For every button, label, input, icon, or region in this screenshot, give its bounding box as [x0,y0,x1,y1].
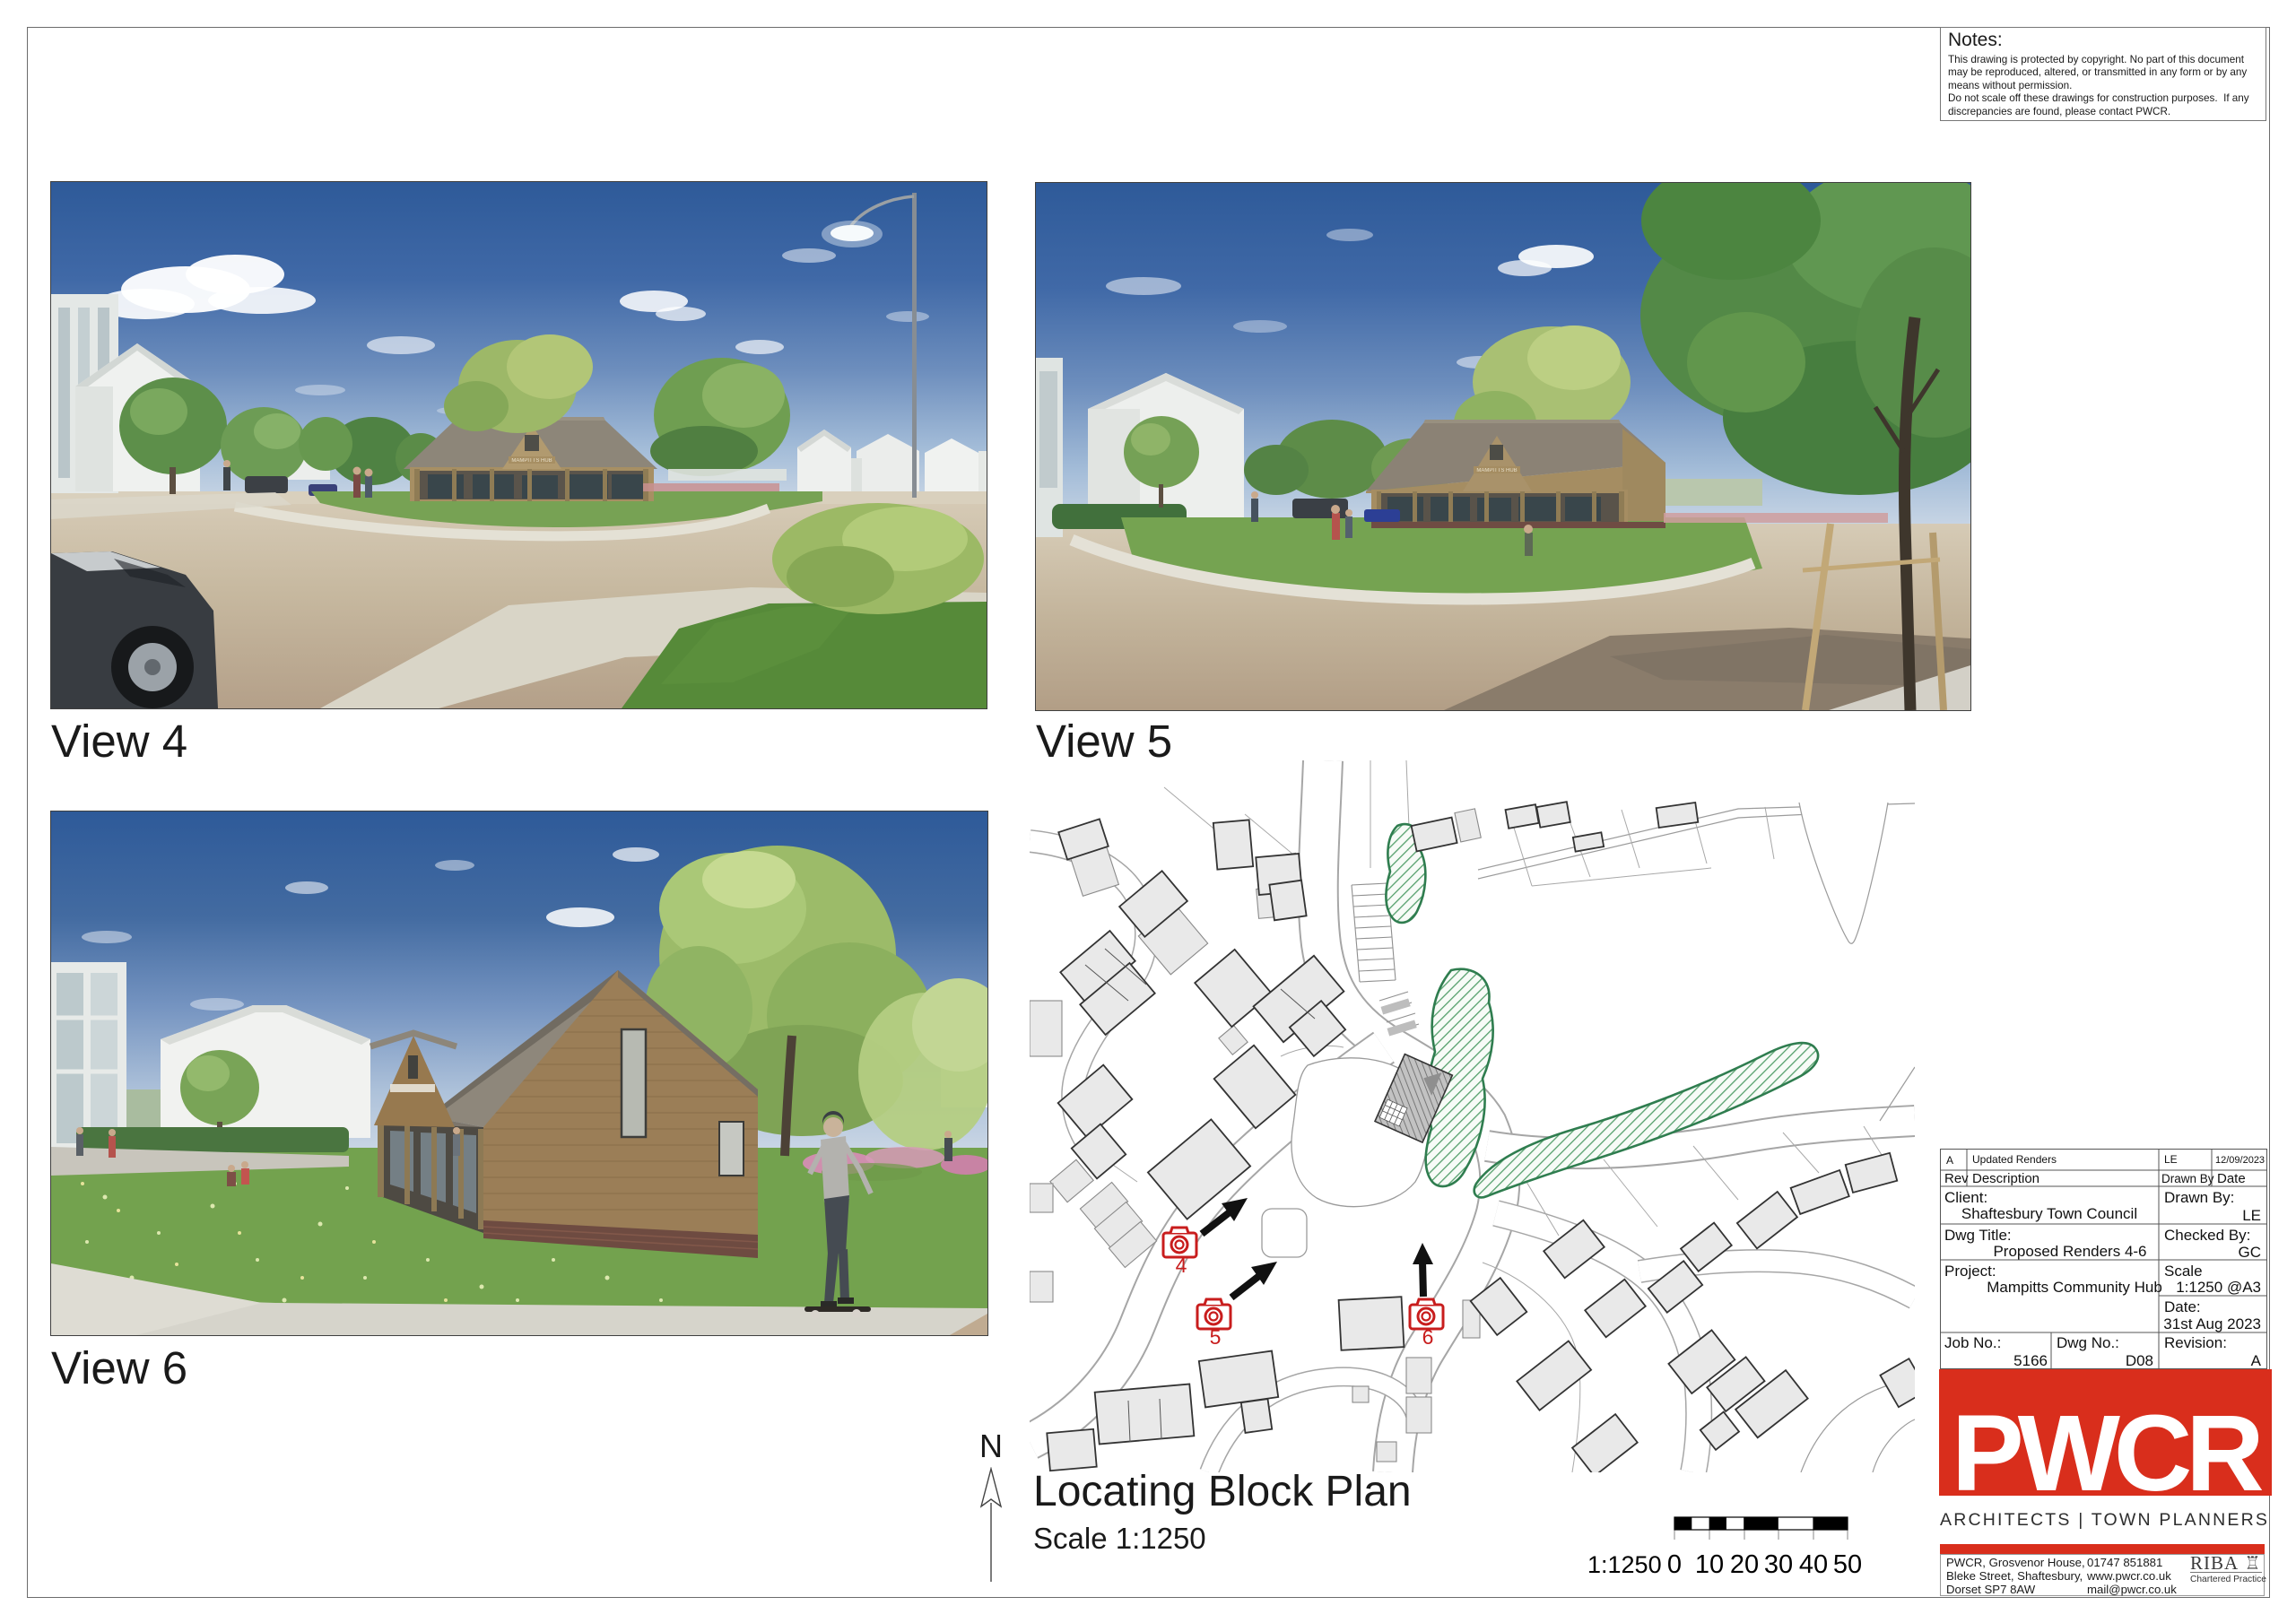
svg-text:0: 0 [1667,1550,1682,1578]
svg-text:5166: 5166 [2013,1352,2048,1369]
svg-text:D08: D08 [2126,1352,2153,1369]
svg-text:Shaftesbury Town Council: Shaftesbury Town Council [1961,1205,2137,1222]
svg-text:50: 50 [1833,1550,1862,1578]
svg-text:31st Aug 2023: 31st Aug 2023 [2163,1315,2261,1332]
svg-text:40: 40 [1799,1550,1828,1578]
svg-text:30: 30 [1764,1550,1793,1578]
svg-text:Client:: Client: [1944,1189,1987,1206]
svg-text:PWCR: PWCR [1952,1392,2262,1496]
svg-text:Proposed Renders 4-6: Proposed Renders 4-6 [1993,1243,2146,1260]
svg-text:Description: Description [1972,1171,2039,1186]
svg-text:Mampitts Community Hub: Mampitts Community Hub [1987,1279,2162,1296]
svg-text:LE: LE [2242,1207,2261,1224]
svg-text:12/09/2023: 12/09/2023 [2215,1155,2265,1166]
svg-text:6: 6 [1422,1325,1434,1349]
svg-text:4: 4 [1176,1254,1187,1277]
svg-text:Revision:: Revision: [2164,1334,2227,1351]
svg-text:Checked By:: Checked By: [2164,1227,2250,1244]
svg-text:A: A [1946,1154,1953,1167]
svg-text:1:1250 @A3: 1:1250 @A3 [2176,1279,2261,1296]
svg-text:Dwg No.:: Dwg No.: [2057,1334,2119,1351]
svg-text:5: 5 [1210,1325,1222,1349]
svg-text:LE: LE [2164,1153,2178,1166]
svg-text:Scale: Scale [2164,1263,2203,1280]
svg-text:Rev: Rev [1944,1171,1969,1186]
svg-text:Dwg Title:: Dwg Title: [1944,1227,2012,1244]
svg-text:Updated Renders: Updated Renders [1972,1153,2057,1166]
svg-text:MAMPITTS HUB: MAMPITTS HUB [1476,468,1517,473]
svg-text:Drawn By:: Drawn By: [2164,1189,2234,1206]
svg-text:1:1250: 1:1250 [1587,1551,1662,1578]
svg-text:GC: GC [2239,1244,2262,1261]
svg-text:Drawn By: Drawn By [2161,1172,2214,1185]
svg-text:10: 10 [1695,1550,1724,1578]
svg-text:Project:: Project: [1944,1263,1996,1280]
svg-text:Date:: Date: [2164,1298,2201,1315]
svg-text:Date: Date [2217,1171,2246,1186]
svg-text:A: A [2251,1352,2262,1369]
svg-text:MAMPITTS HUB: MAMPITTS HUB [511,458,552,464]
svg-text:Job No.:: Job No.: [1944,1334,2001,1351]
svg-text:20: 20 [1730,1550,1759,1578]
